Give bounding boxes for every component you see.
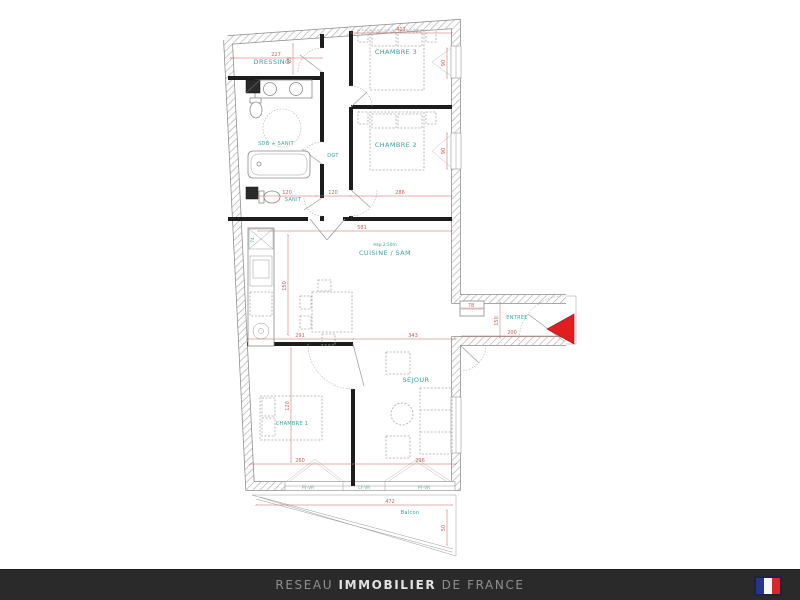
window-label-center: CF-VR — [358, 485, 370, 490]
dim-sejour-width: 296 — [415, 458, 425, 464]
dim-chambre1-width: 260 — [295, 458, 305, 464]
room-label-sdb: SDB + SANIT — [258, 141, 295, 147]
nightstand — [426, 112, 436, 124]
door-dgt-cuisine — [310, 219, 345, 240]
duct-column — [246, 187, 258, 199]
room-label-balcon: Balcon — [401, 510, 420, 516]
dim-dgt-width: 120 — [328, 190, 338, 196]
dim-entree-width: 200 — [507, 330, 517, 336]
dimension-labels: 227 411 120 120 286 581 291 343 78 200 2… — [250, 27, 517, 531]
sdb-fixtures — [246, 80, 312, 178]
sanit-fixtures — [246, 187, 280, 203]
coffee-table — [391, 403, 413, 425]
window-label-right: PF-VR — [418, 485, 430, 490]
toilet-icon — [250, 98, 262, 118]
door-entree-sejour — [460, 345, 486, 371]
dim-lower-left: 291 — [295, 333, 305, 339]
dim-chambre1-depth: 120 — [285, 401, 291, 411]
france-flag-icon — [754, 576, 782, 596]
kitchen-counter — [248, 228, 274, 346]
bathtub-icon — [248, 151, 310, 178]
dim-chambre2-width: 286 — [395, 190, 405, 196]
door-chambre1 — [308, 344, 364, 389]
door-chambre3 — [351, 86, 372, 107]
dim-kitchen-counter: 74 — [250, 237, 256, 243]
real-estate-floor-plan-page: 227 411 120 120 286 581 291 343 78 200 2… — [0, 0, 800, 600]
window-label-left: PF-VR — [302, 485, 314, 490]
brand-text: RESEAU IMMOBILIER DE FRANCE — [275, 578, 524, 592]
chambre3-furniture — [358, 30, 436, 90]
armchair — [386, 352, 410, 374]
dim-window-chambre3: 90 — [441, 60, 447, 66]
dim-kitchen-run: 150 — [282, 281, 288, 291]
room-label-cuisine: CUISINE / SAM — [359, 249, 411, 257]
door-sanit — [304, 198, 322, 216]
room-label-chambre1: CHAMBRE 1 — [276, 421, 309, 427]
dim-window-chambre2: 90 — [441, 148, 447, 154]
room-label-sejour: SEJOUR — [403, 376, 430, 384]
door-chambre2 — [351, 190, 377, 216]
brand-prefix: RESEAU — [275, 578, 333, 592]
dim-cuisine-width: 581 — [357, 225, 367, 231]
ceiling-height-note: Hsp 2.50m — [373, 242, 396, 248]
nightstand — [426, 30, 436, 42]
sofa — [420, 388, 452, 454]
sink-icon — [290, 83, 303, 96]
room-label-dressing: DRESSING — [254, 58, 291, 66]
brand-main: IMMOBILIER — [339, 578, 437, 592]
dim-entree-closet: 78 — [468, 303, 474, 309]
floor-plan: 227 411 120 120 286 581 291 343 78 200 2… — [0, 0, 800, 570]
room-label-chambre2: CHAMBRE 2 — [375, 141, 417, 149]
bed — [370, 30, 424, 90]
dim-balcon-depth: 50 — [441, 525, 447, 531]
chair — [318, 280, 331, 291]
dining-table — [300, 280, 352, 345]
room-label-entree: ENTREE — [506, 315, 528, 321]
door-dressing — [298, 48, 322, 72]
brand-suffix: DE FRANCE — [442, 578, 525, 592]
toilet-icon — [259, 191, 280, 203]
window-sejour-right — [451, 397, 461, 453]
chair — [300, 296, 311, 309]
room-labels: DRESSING CHAMBRE 3 SDB + SANIT DGT SANIT… — [254, 48, 528, 516]
chair — [300, 316, 311, 329]
footer-bar: RESEAU IMMOBILIER DE FRANCE — [0, 569, 800, 600]
armchair — [386, 436, 410, 458]
dim-lower-right: 343 — [408, 333, 418, 339]
dim-sanit-width: 120 — [282, 190, 292, 196]
dim-entree-depth: 150 — [494, 316, 500, 326]
balcony-outline — [252, 495, 456, 556]
dim-top-chambre3: 411 — [396, 27, 406, 33]
nightstand — [358, 112, 368, 124]
dim-balcon-width: 472 — [385, 499, 395, 505]
room-label-sanit: SANIT — [285, 197, 302, 203]
room-label-dgt: DGT — [327, 153, 339, 159]
sejour-furniture — [386, 352, 452, 458]
dimension-lines — [230, 33, 560, 545]
room-label-chambre3: CHAMBRE 3 — [375, 48, 417, 56]
sink-icon — [264, 83, 277, 96]
